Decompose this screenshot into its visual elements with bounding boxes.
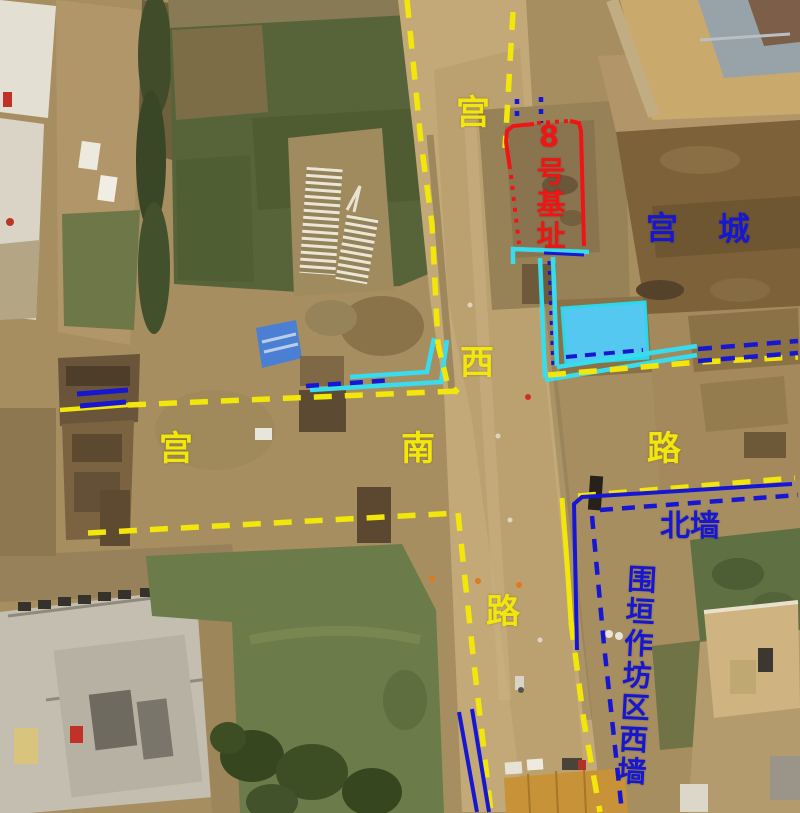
road-label-gong-west: 宫 bbox=[456, 95, 490, 131]
palace-city-label-1: 宫 bbox=[646, 211, 678, 245]
road-label-lu-west: 路 bbox=[486, 594, 520, 630]
site8-label: 8号基址 bbox=[532, 120, 564, 253]
road-label-lu-south: 路 bbox=[647, 431, 681, 467]
road-label-xi: 西 bbox=[460, 345, 494, 381]
annotated-aerial-site-photo: 宫西路宫南路8号基址宫城北墙围垣作坊区西墙 bbox=[0, 0, 800, 813]
palace-city-label-2: 城 bbox=[718, 212, 750, 246]
workshop-wall-label: 围垣作坊区西墙 bbox=[612, 563, 656, 788]
north-wall-label: 北墙 bbox=[660, 511, 720, 543]
road-label-nan: 南 bbox=[401, 431, 435, 467]
labels-layer: 宫西路宫南路8号基址宫城北墙围垣作坊区西墙 bbox=[0, 0, 800, 813]
road-label-gong-south: 宫 bbox=[159, 431, 193, 467]
